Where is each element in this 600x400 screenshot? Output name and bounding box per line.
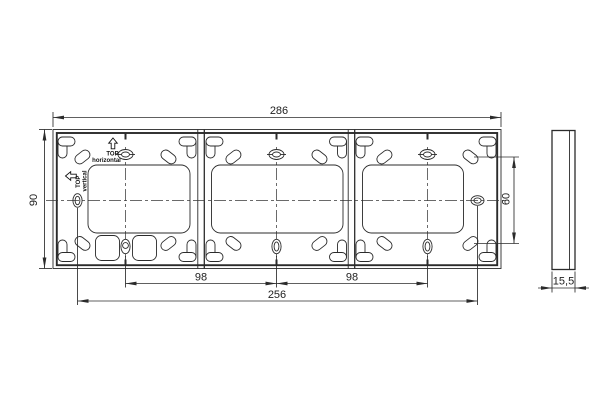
- side-profile: [552, 131, 575, 270]
- fixing-hole-bottom: [121, 239, 130, 253]
- claw-cutout: [96, 236, 120, 261]
- mounting-slot: [310, 148, 329, 166]
- dim-depth: 15,5: [538, 272, 589, 293]
- corner-cutout: [58, 240, 75, 262]
- corner-cutout: [356, 137, 373, 158]
- top-vertical-label: TOP vertical: [76, 170, 89, 191]
- corner-cutout: [206, 240, 223, 262]
- corner-cutout: [179, 137, 196, 158]
- front-view: TOP horizontal TOP vertical: [46, 130, 507, 269]
- corner-cutout: [206, 137, 223, 158]
- corner-cutout: [179, 240, 196, 262]
- module-1: [58, 134, 196, 266]
- module-3: [356, 134, 496, 266]
- dim-fixing-span: 256: [78, 289, 478, 303]
- claw-cutout: [133, 236, 157, 261]
- frame-dimension-drawing: TOP horizontal TOP vertical 286: [0, 0, 600, 400]
- corner-cutout: [330, 240, 347, 262]
- corner-cutout: [58, 137, 75, 158]
- side-view: [552, 131, 575, 270]
- dim-256-value: 256: [268, 289, 286, 301]
- dim-286-value: 286: [270, 105, 288, 117]
- dimensions: 286 90 98 98: [28, 105, 589, 305]
- dim-98-left-value: 98: [195, 272, 207, 284]
- top-horizontal-label-line1: TOP: [106, 152, 118, 158]
- arrow-up-icon: [109, 138, 118, 149]
- module-3-window-opening: [363, 165, 464, 233]
- module-2-window-opening: [212, 165, 344, 233]
- dim-60-value: 60: [501, 193, 513, 205]
- top-horizontal-label-line2: horizontal: [92, 158, 121, 164]
- mounting-slot: [224, 148, 243, 166]
- mounting-slot: [375, 235, 394, 253]
- fixing-hole-bottom: [272, 239, 281, 253]
- mounting-slot: [159, 148, 178, 166]
- mounting-slot: [375, 148, 394, 166]
- technical-drawing-page: TOP horizontal TOP vertical 286: [0, 0, 600, 400]
- mounting-slot: [310, 235, 329, 253]
- corner-cutout: [330, 137, 347, 158]
- dim-overall-width: 286: [53, 105, 501, 127]
- dim-15-5-value: 15,5: [553, 276, 574, 288]
- fixing-hole-top: [267, 150, 286, 160]
- mounting-slot: [159, 235, 178, 253]
- corner-cutout: [356, 240, 373, 262]
- dim-90-value: 90: [28, 194, 40, 206]
- arrow-left-icon: [66, 172, 77, 181]
- mounting-slot: [224, 235, 243, 253]
- fixing-hole-bottom: [423, 239, 432, 253]
- corner-cutout: [479, 137, 496, 158]
- dim-overall-height: 90: [28, 130, 52, 269]
- fixing-hole-top: [418, 150, 437, 160]
- dim-98-right-value: 98: [346, 272, 358, 284]
- module-1-window-opening: [88, 165, 190, 233]
- mounting-slot: [73, 235, 92, 253]
- mounting-slot: [73, 148, 92, 166]
